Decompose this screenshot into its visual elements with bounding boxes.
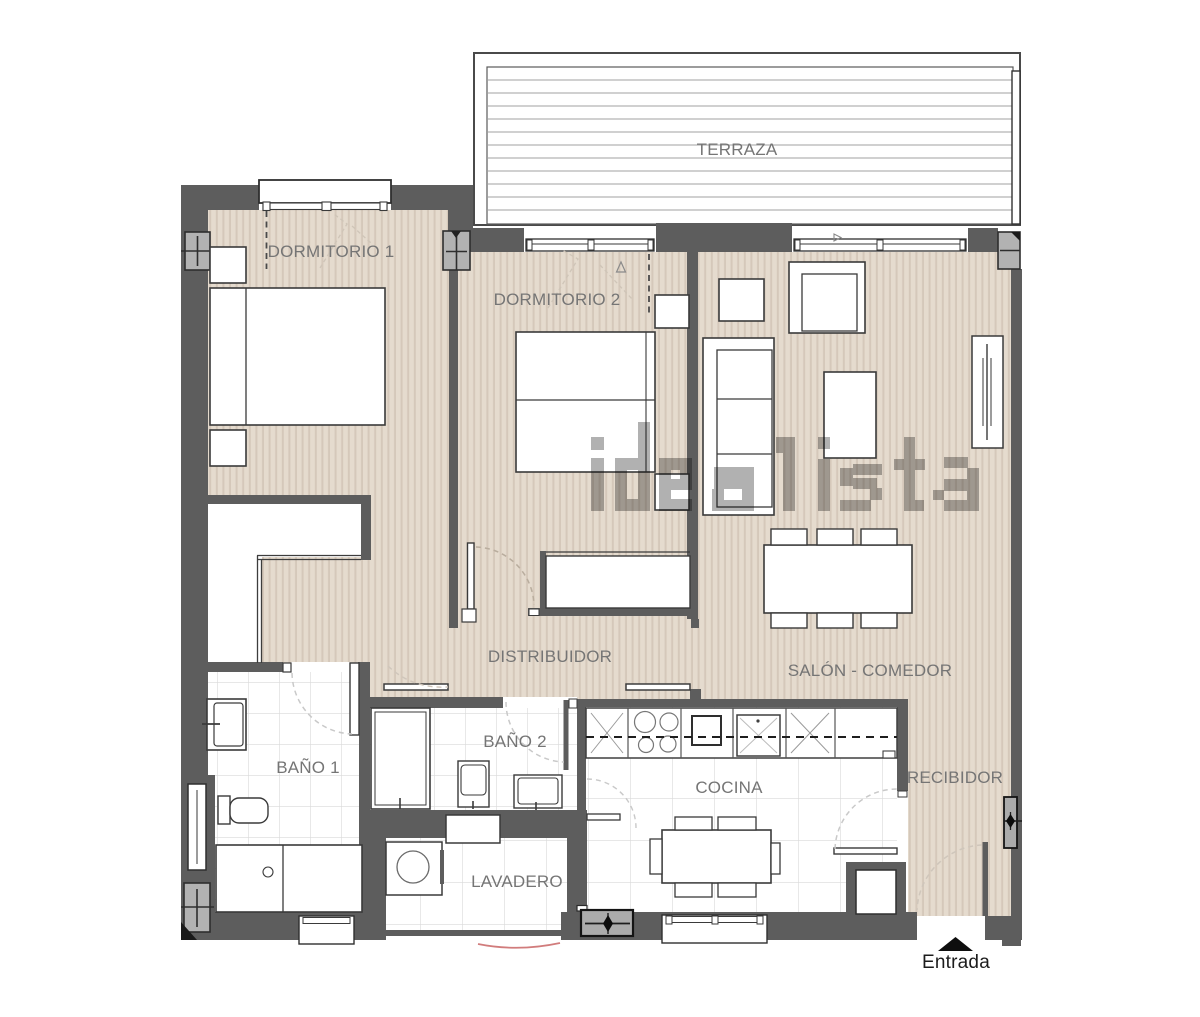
svg-text:RECIBIDOR: RECIBIDOR <box>907 768 1003 787</box>
svg-text:SALÓN - COMEDOR: SALÓN - COMEDOR <box>788 661 953 680</box>
svg-text:DISTRIBUIDOR: DISTRIBUIDOR <box>488 647 612 666</box>
svg-text:COCINA: COCINA <box>695 778 763 797</box>
svg-text:BAÑO 1: BAÑO 1 <box>276 758 340 777</box>
svg-text:DORMITORIO 2: DORMITORIO 2 <box>494 290 621 309</box>
svg-text:LAVADERO: LAVADERO <box>471 872 563 891</box>
svg-text:Entrada: Entrada <box>922 952 990 973</box>
svg-text:BAÑO 2: BAÑO 2 <box>483 732 547 751</box>
svg-text:TERRAZA: TERRAZA <box>697 140 778 159</box>
svg-text:DORMITORIO 1: DORMITORIO 1 <box>268 242 395 261</box>
